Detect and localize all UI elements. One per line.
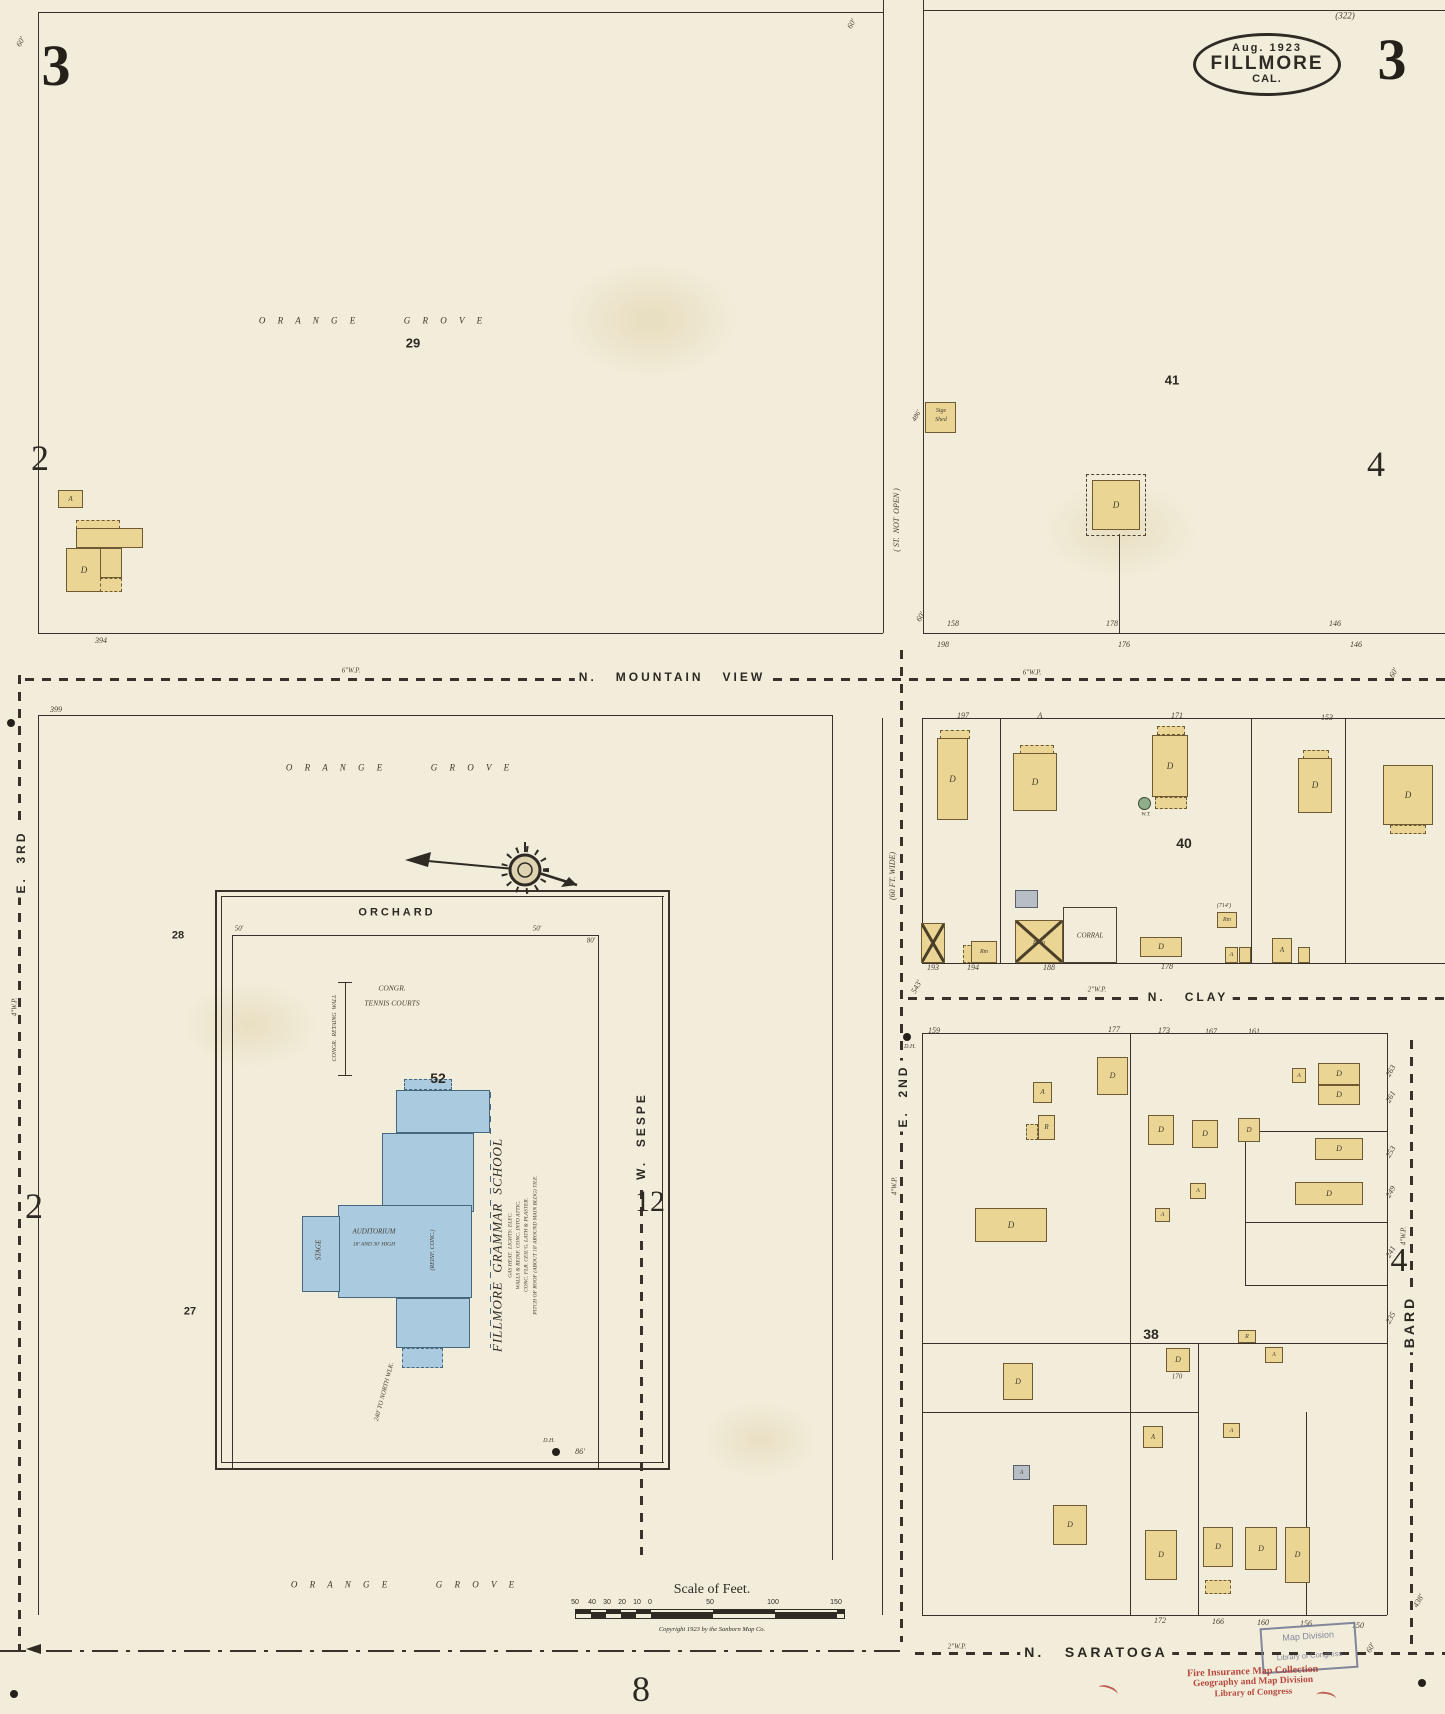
- block-number-29: 29: [406, 337, 420, 350]
- water-pipe-label: 2"W.P.: [1088, 987, 1107, 994]
- block-number-28: 28: [172, 931, 184, 942]
- building-label: D: [1295, 1551, 1301, 1559]
- lot-number: 153: [1321, 714, 1333, 722]
- building-d: D: [1166, 1348, 1190, 1372]
- building-label: A: [1280, 947, 1284, 954]
- stamp-line: Map Division: [1262, 1628, 1354, 1644]
- building: [1157, 726, 1185, 735]
- building-label: D: [1175, 1356, 1181, 1364]
- building-label: D: [1067, 1521, 1073, 1529]
- map-line: [38, 715, 832, 716]
- stamp-flourish: [1097, 1683, 1119, 1699]
- map-line: [1198, 1343, 1199, 1615]
- school-name: FILLMORE GRAMMAR SCHOOL: [491, 1138, 504, 1352]
- building-label: A: [1230, 1428, 1234, 1434]
- building-d: D: [1140, 937, 1182, 957]
- lot-number: 176: [1118, 641, 1130, 649]
- school-note: PITCH OF ROOF (ABOUT 18' AROUND MAIN BLD…: [533, 1175, 539, 1315]
- scale-tick: 50: [571, 1599, 579, 1606]
- block-number-38: 38: [1143, 1327, 1159, 1341]
- title-stamp: Aug. 1923 FILLMORE CAL.: [1193, 33, 1341, 96]
- room-auditorium: AUDITORIUM: [352, 1229, 395, 1236]
- lot-number: 193: [927, 964, 939, 972]
- lot-number: 161: [1248, 1028, 1260, 1036]
- scale-tick: 10: [633, 1599, 641, 1606]
- dim-60: 60': [15, 36, 27, 48]
- compass-rose-icon: [403, 840, 593, 906]
- street-dash-line: [640, 1190, 643, 1555]
- building-label: A: [1196, 1188, 1200, 1194]
- building: [1138, 797, 1151, 810]
- scale-tick: 100: [767, 1599, 779, 1606]
- map-line: [662, 896, 663, 1463]
- map-line: [923, 633, 1445, 634]
- building-r: R: [1038, 1115, 1055, 1140]
- water-pipe-label: 4"W.P.: [892, 1177, 899, 1196]
- map-line: [1245, 1285, 1387, 1286]
- lot-number: 486': [911, 409, 923, 423]
- building-rm: Rm: [1217, 912, 1237, 928]
- scale-tick: 20: [618, 1599, 626, 1606]
- dim-86: 86': [575, 1448, 585, 1456]
- dim-60: 60': [846, 18, 858, 30]
- block-number-40: 40: [1176, 836, 1192, 850]
- building-label: D: [1312, 781, 1319, 790]
- building-d: D: [1092, 480, 1140, 530]
- map-line: [923, 10, 1445, 11]
- hydrant-dot: [10, 1690, 18, 1698]
- building-label: A: [1161, 1212, 1165, 1218]
- map-line: [922, 1343, 1387, 1344]
- building: [1155, 797, 1187, 809]
- building-label: A: [1297, 1073, 1301, 1079]
- map-line: [345, 982, 346, 1075]
- building-r: R: [1238, 1330, 1256, 1343]
- lot-number: 146: [1329, 620, 1341, 628]
- lot-number: 394: [95, 637, 107, 645]
- building-label: D: [1405, 791, 1412, 800]
- building: [1015, 890, 1038, 908]
- map-line: [338, 1075, 352, 1076]
- building-d: D: [1192, 1120, 1218, 1148]
- map-line: [923, 0, 924, 633]
- building-label: D: [1158, 943, 1164, 951]
- school-note: GAS HEAT. LIGHTS: ELEC.: [508, 1212, 514, 1277]
- paper-stain: [560, 260, 740, 380]
- map-line: [882, 718, 883, 1615]
- sheet-ref-4-upper: 4: [1367, 446, 1385, 482]
- water-pipe-label: 2"W.P.: [948, 1644, 967, 1651]
- dim-438: 438': [1412, 1593, 1426, 1609]
- paper-stain: [180, 980, 320, 1070]
- sheet-number-right: 3: [1378, 31, 1407, 89]
- lot-number: 170: [1172, 1374, 1183, 1381]
- map-line: [922, 963, 1445, 964]
- city-limit-arrow-icon: [26, 1644, 41, 1654]
- hydrant-dot: [1418, 1679, 1426, 1687]
- block-number-41: 41: [1165, 374, 1179, 387]
- sheet-ref-8-bottom: 8: [632, 1671, 650, 1707]
- building-label: D: [1110, 1072, 1116, 1080]
- building: [921, 923, 945, 963]
- building-label: D: [1336, 1070, 1342, 1078]
- building-label: D: [1167, 762, 1174, 771]
- street-clay: N. CLAY: [1144, 991, 1233, 1003]
- building: [1390, 825, 1426, 834]
- building-a: A: [1013, 1465, 1030, 1480]
- building-rm: Rm: [971, 941, 997, 963]
- building-label: D: [1015, 1378, 1021, 1386]
- map-line: [38, 12, 883, 13]
- stge-shed-label: Stge: [936, 408, 946, 414]
- orange-grove-label: O R A N G E G R O V E: [259, 317, 487, 326]
- map-line: [232, 935, 598, 936]
- building-d: D: [937, 738, 968, 820]
- building: [1298, 947, 1310, 963]
- scale-title: Scale of Feet.: [674, 1582, 751, 1598]
- building-a: A: [1033, 1082, 1052, 1103]
- building-label: D: [1336, 1091, 1342, 1099]
- lot-letter: A: [1038, 712, 1043, 720]
- building: [76, 528, 143, 548]
- room-stage: STAGE: [316, 1240, 323, 1260]
- dim-60: 60': [915, 611, 927, 623]
- building-d: D: [1203, 1527, 1233, 1567]
- building-d: D: [1053, 1505, 1087, 1545]
- dim-50: 50': [533, 926, 542, 933]
- building-label: D: [1326, 1190, 1332, 1198]
- map-line: [1130, 1033, 1131, 1615]
- school-building-part: [338, 1205, 472, 1298]
- street-bard: BARD: [1402, 1292, 1416, 1352]
- building: [1205, 1580, 1231, 1594]
- sheet-ref-12-sespe: 12: [635, 1187, 665, 1217]
- hydrant-dot: [7, 719, 15, 727]
- map-line: [1245, 1131, 1246, 1285]
- sheet-number-left: 3: [42, 37, 71, 95]
- building-d: D: [1295, 1182, 1363, 1205]
- scale-tick: 0: [648, 1599, 652, 1606]
- building-d: D: [1285, 1527, 1310, 1583]
- water-pipe-label: 4"W.P.: [12, 998, 19, 1017]
- lot-number: 198: [937, 641, 949, 649]
- building-a: A: [1190, 1183, 1206, 1199]
- corral-label: CORRAL: [1077, 933, 1103, 940]
- street-saratoga: N. SARATOGA: [1020, 1645, 1172, 1659]
- map-line: [832, 715, 833, 1560]
- hydrant-label: D.H.: [904, 1044, 916, 1050]
- building-d: D: [1245, 1527, 1277, 1570]
- map-line: [215, 1468, 670, 1470]
- building-label: A: [1151, 1434, 1155, 1441]
- lot-number: 194: [967, 964, 979, 972]
- map-line: [1245, 1131, 1387, 1132]
- building-label: A: [68, 496, 72, 503]
- map-line: [1119, 534, 1120, 633]
- dim-50: 50': [235, 926, 244, 933]
- building-d: D: [1298, 758, 1332, 813]
- hydrant-dot: [552, 1448, 560, 1456]
- congr-tennis-label: TENNIS COURTS: [364, 999, 419, 1007]
- dim-543: 543': [910, 979, 924, 995]
- lot-number: 177: [1108, 1026, 1120, 1034]
- scale-bar-row: [575, 1613, 845, 1619]
- building-label: A: [1230, 952, 1234, 958]
- note-60ft-wide: (60 FT. WIDE): [889, 852, 897, 900]
- building-label: D: [1113, 501, 1120, 510]
- map-line: [922, 1033, 1387, 1034]
- map-line: [922, 1412, 1198, 1413]
- volume-note: (322): [1335, 12, 1355, 21]
- hydrant-dot: [903, 1033, 911, 1041]
- note-st-not-open: ( ST. NOT OPEN ): [893, 488, 901, 552]
- building: [1026, 1124, 1038, 1140]
- building-d: D: [1318, 1085, 1360, 1105]
- building-d: D: [66, 548, 102, 592]
- lot-number: 171: [1171, 712, 1183, 720]
- map-line: [1345, 718, 1346, 963]
- stge-shed-label: Shed: [935, 417, 947, 423]
- lot-number: 146: [1350, 641, 1362, 649]
- street-dash-line: [900, 650, 903, 1642]
- orange-grove-label: O R A N G E G R O V E: [291, 1581, 519, 1590]
- building: [1239, 947, 1251, 963]
- copyright-note: Copyright 1923 by the Sanborn Map Co.: [659, 1626, 765, 1633]
- water-pipe-label: 4"W.P.: [1401, 1227, 1408, 1246]
- room-auditorium-note: 18' AND 30' HIGH: [353, 1242, 395, 1248]
- scale-tick: 50: [706, 1599, 714, 1606]
- building: [100, 548, 122, 578]
- building-d: D: [1238, 1118, 1260, 1142]
- dim-80: 80': [587, 938, 596, 945]
- building-label: A: [1040, 1089, 1044, 1096]
- building-label: D: [1158, 1126, 1164, 1134]
- building-label: Rm: [1223, 917, 1231, 923]
- map-line: [38, 633, 883, 634]
- street-dash-line: [915, 1652, 1445, 1655]
- street-w-sespe: W. SESPE: [635, 1088, 647, 1184]
- block-number-27: 27: [184, 1307, 196, 1318]
- block-number-52: 52: [430, 1071, 446, 1085]
- building-d: D: [1315, 1138, 1363, 1160]
- building-a: A: [1292, 1068, 1306, 1083]
- lot-number: 166: [1212, 1618, 1224, 1626]
- building-a: A: [58, 490, 83, 508]
- map-line: [1245, 1222, 1387, 1223]
- street-mountain-view: N. MOUNTAIN VIEW: [575, 671, 769, 683]
- building-label: D: [1336, 1145, 1342, 1153]
- street-dash-line: [18, 675, 21, 1650]
- lot-number: 159: [928, 1027, 940, 1035]
- building-a: A: [1155, 1208, 1170, 1222]
- map-line: [598, 935, 599, 1468]
- barn-label: Barn: [1033, 940, 1045, 946]
- street-orchard: ORCHARD: [358, 908, 435, 919]
- building-label: D: [949, 775, 956, 784]
- building-d: D: [975, 1208, 1047, 1242]
- building-label: R: [1044, 1124, 1048, 1131]
- building-d: D: [1148, 1115, 1174, 1145]
- building-label: D: [1032, 778, 1039, 787]
- school-note: CONC. FLR. CEIL'G. LATH & PLASTER.: [524, 1198, 530, 1292]
- building-d: D: [1013, 753, 1057, 811]
- building: [100, 578, 122, 592]
- scale-bar: Scale of Feet. 50 40 30 20 10 0 50 100 1…: [575, 1582, 860, 1642]
- water-pipe-label: 6"W.P.: [1023, 670, 1042, 677]
- lot-number: 173: [1158, 1027, 1170, 1035]
- lot-number: 188: [1043, 964, 1055, 972]
- map-line: [38, 715, 39, 1615]
- school-reinf-note: (REINF. CONC.): [430, 1229, 436, 1270]
- sheet-ref-2-upper: 2: [31, 440, 49, 476]
- building-a: A: [1223, 1423, 1240, 1438]
- lot-number: 158: [947, 620, 959, 628]
- map-line: [1000, 718, 1001, 963]
- scale-tick: 40: [588, 1599, 596, 1606]
- building-a: A: [1225, 947, 1238, 963]
- school-building-part: [402, 1348, 443, 1368]
- building-label: D: [1246, 1127, 1251, 1134]
- map-line: [922, 1033, 923, 1615]
- stamp-line: Library of Congress: [1263, 1648, 1355, 1663]
- map-line: [1251, 718, 1252, 963]
- stamp-state: CAL.: [1196, 73, 1338, 85]
- sheet-ref-2-lower: 2: [25, 1188, 43, 1224]
- lot-number: 178: [1161, 963, 1173, 971]
- map-line: [232, 935, 233, 1468]
- building-label: R: [1245, 1334, 1249, 1340]
- map-line: [1387, 1033, 1388, 1615]
- scale-tick: 150: [830, 1599, 842, 1606]
- building-a: A: [1272, 938, 1292, 963]
- building-label: D: [1258, 1545, 1264, 1553]
- map-line: [215, 890, 217, 1470]
- building-d: D: [1318, 1063, 1360, 1085]
- tank-label: W.T.: [1141, 812, 1150, 818]
- school-walk-note: 240' TO NORTH WLK.: [374, 1362, 396, 1422]
- building-d: D: [1383, 765, 1433, 825]
- building-a: A: [1143, 1426, 1163, 1448]
- city-limit-line: [0, 1650, 908, 1652]
- building-d: D: [1152, 735, 1188, 797]
- map-line: [883, 0, 884, 633]
- street-e-2nd: E. 2ND: [897, 1060, 909, 1131]
- building-d: D: [1003, 1363, 1033, 1400]
- school-note: WALLS & REINF. CONC. INTO ATTIC.: [516, 1201, 522, 1290]
- hydrant-label: D.H.: [543, 1438, 555, 1444]
- lot-number: 178: [1106, 620, 1118, 628]
- school-building-part: [382, 1133, 474, 1212]
- lot-number: (714'): [1217, 903, 1231, 909]
- orange-grove-label: O R A N G E G R O V E: [286, 764, 514, 773]
- building-label: D: [1215, 1543, 1221, 1551]
- stamp-city: FILLMORE: [1196, 54, 1338, 73]
- lot-number: 160: [1257, 1619, 1269, 1627]
- lot-number: 172: [1154, 1617, 1166, 1625]
- building-label: D: [81, 566, 88, 575]
- building-label: Rm: [980, 949, 988, 955]
- building-label: D: [1202, 1130, 1208, 1138]
- map-line: [221, 896, 222, 1463]
- building-a: A: [1265, 1347, 1283, 1363]
- lot-number: 167: [1205, 1028, 1217, 1036]
- scale-tick: 30: [603, 1599, 611, 1606]
- lot-number: 399: [50, 706, 62, 714]
- sanborn-map-sheet: ADDDDDDDRmDRmAAARDDDADDDDDAADRADDAAADDDD…: [0, 0, 1445, 1714]
- building-label: A: [1272, 1352, 1276, 1358]
- lot-number: 197: [957, 712, 969, 720]
- congr-tennis-label: CONGR.: [378, 984, 405, 992]
- building-d: D: [1145, 1530, 1177, 1580]
- school-building-part: [396, 1090, 490, 1133]
- building-label: D: [1158, 1551, 1164, 1559]
- map-line: [668, 890, 670, 1470]
- map-line: [38, 12, 39, 633]
- building-label: A: [1020, 1470, 1024, 1476]
- map-line: [1306, 1412, 1307, 1615]
- congr-retaining-wall-label: CONGR. RETAING WALL: [332, 995, 338, 1062]
- paper-stain: [700, 1400, 820, 1480]
- building-d: D: [1097, 1057, 1128, 1095]
- building-label: D: [1008, 1221, 1015, 1230]
- water-pipe-label: 6"W.P.: [342, 668, 361, 675]
- school-building-part: [396, 1298, 470, 1348]
- street-e-3rd: E. 3RD: [15, 826, 27, 897]
